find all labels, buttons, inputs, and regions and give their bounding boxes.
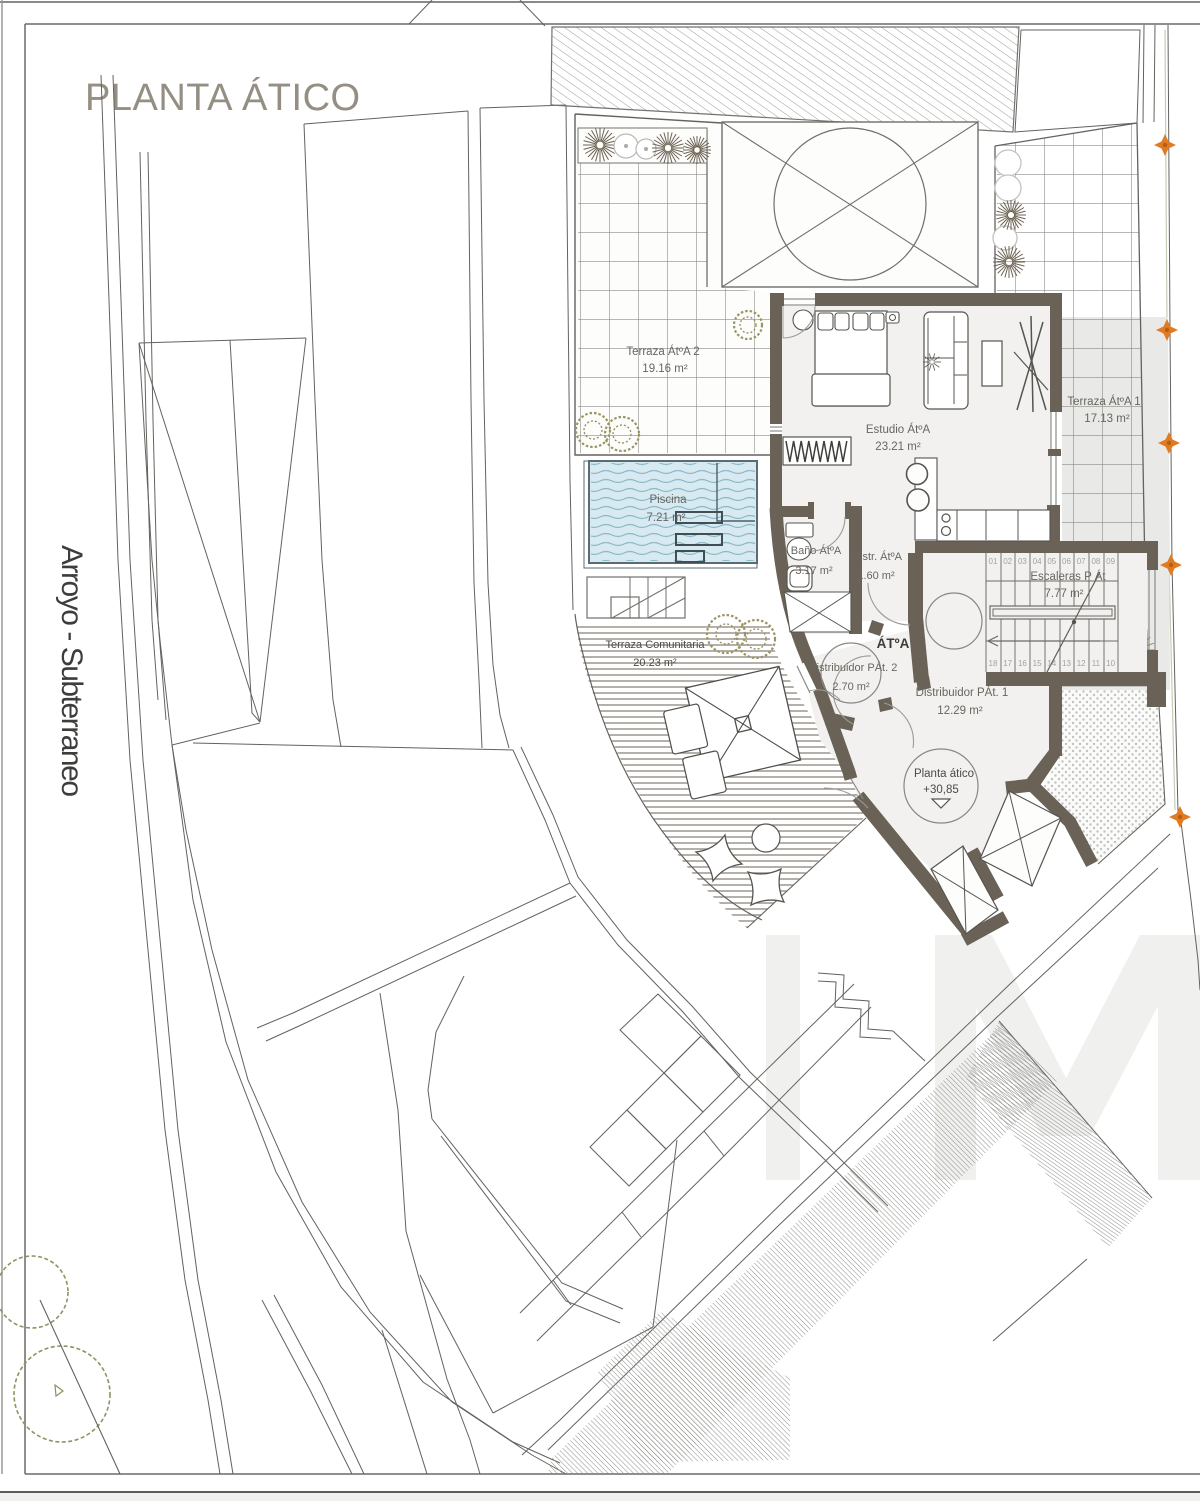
svg-text:07: 07 — [1077, 557, 1086, 566]
svg-text:14: 14 — [1047, 659, 1056, 668]
svg-text:08: 08 — [1091, 557, 1100, 566]
svg-text:17: 17 — [1003, 659, 1012, 668]
svg-text:11: 11 — [1092, 659, 1101, 668]
svg-text:06: 06 — [1062, 557, 1071, 566]
svg-text:13: 13 — [1062, 659, 1071, 668]
svg-text:15: 15 — [1033, 659, 1042, 668]
svg-text:1.60 m²: 1.60 m² — [857, 570, 895, 582]
svg-text:Planta ático: Planta ático — [914, 768, 974, 780]
svg-text:02: 02 — [1003, 557, 1012, 566]
svg-text:Distribuidor PÁt. 1: Distribuidor PÁt. 1 — [916, 686, 1009, 699]
svg-text:Piscina: Piscina — [649, 494, 687, 506]
svg-text:04: 04 — [1033, 557, 1042, 566]
svg-text:Estudio ÁtºA: Estudio ÁtºA — [866, 423, 931, 436]
svg-text:10: 10 — [1106, 659, 1115, 668]
svg-text:7.21 m²: 7.21 m² — [647, 512, 686, 524]
svg-text:18: 18 — [989, 659, 998, 668]
svg-text:16: 16 — [1018, 659, 1027, 668]
svg-text:Distr. ÁtºA: Distr. ÁtºA — [852, 550, 903, 563]
svg-text:2.70 m²: 2.70 m² — [832, 681, 870, 693]
svg-text:23.21 m²: 23.21 m² — [875, 441, 921, 453]
svg-text:01: 01 — [989, 557, 998, 566]
svg-text:12: 12 — [1077, 659, 1086, 668]
svg-text:7.77 m²: 7.77 m² — [1045, 588, 1084, 600]
svg-text:PLANTA ÁTICO: PLANTA ÁTICO — [85, 76, 361, 119]
svg-text:20.23 m²: 20.23 m² — [633, 657, 677, 669]
svg-text:12.29 m²: 12.29 m² — [937, 705, 983, 717]
svg-text:Terraza Comunitaria: Terraza Comunitaria — [605, 639, 705, 651]
svg-text:Escaleras P Át: Escaleras P Át — [1030, 570, 1106, 583]
svg-text:03: 03 — [1018, 557, 1027, 566]
svg-text:3.17 m²: 3.17 m² — [795, 565, 833, 577]
svg-text:05: 05 — [1047, 557, 1056, 566]
svg-text:Terraza ÁtºA 2: Terraza ÁtºA 2 — [626, 345, 699, 358]
svg-text:19.16 m²: 19.16 m² — [642, 363, 688, 375]
svg-text:17.13 m²: 17.13 m² — [1084, 413, 1130, 425]
svg-text:+30,85: +30,85 — [923, 784, 959, 796]
svg-text:Arroyo - Subterraneo: Arroyo - Subterraneo — [55, 545, 88, 797]
svg-text:ÁTºA: ÁTºA — [877, 636, 910, 651]
svg-text:09: 09 — [1106, 557, 1115, 566]
svg-text:Distribuidor PÁt. 2: Distribuidor PÁt. 2 — [809, 661, 898, 674]
svg-text:Terraza ÁtºA 1: Terraza ÁtºA 1 — [1067, 395, 1140, 408]
